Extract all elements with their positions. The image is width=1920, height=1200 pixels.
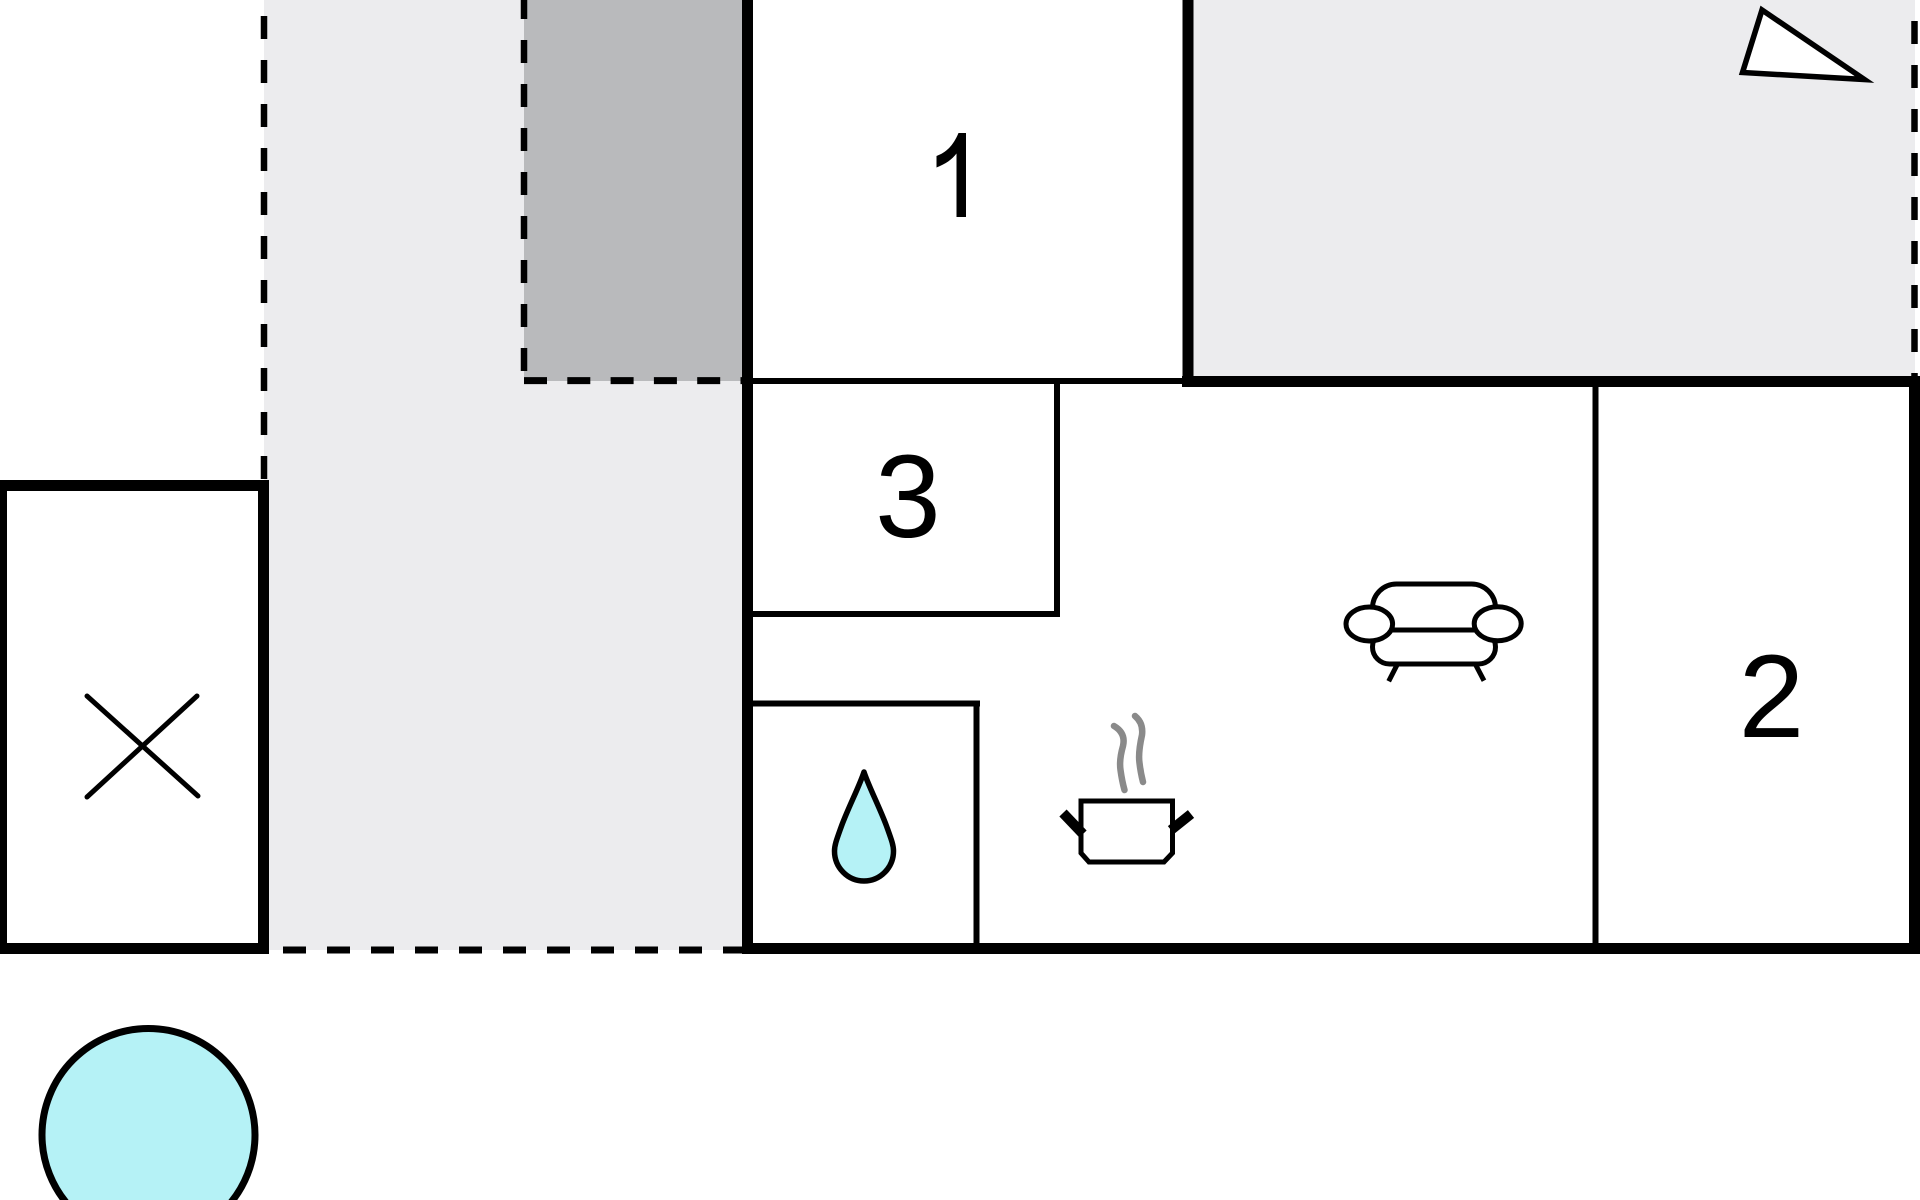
svg-text:2: 2	[1739, 631, 1805, 763]
svg-text:3: 3	[875, 431, 941, 563]
